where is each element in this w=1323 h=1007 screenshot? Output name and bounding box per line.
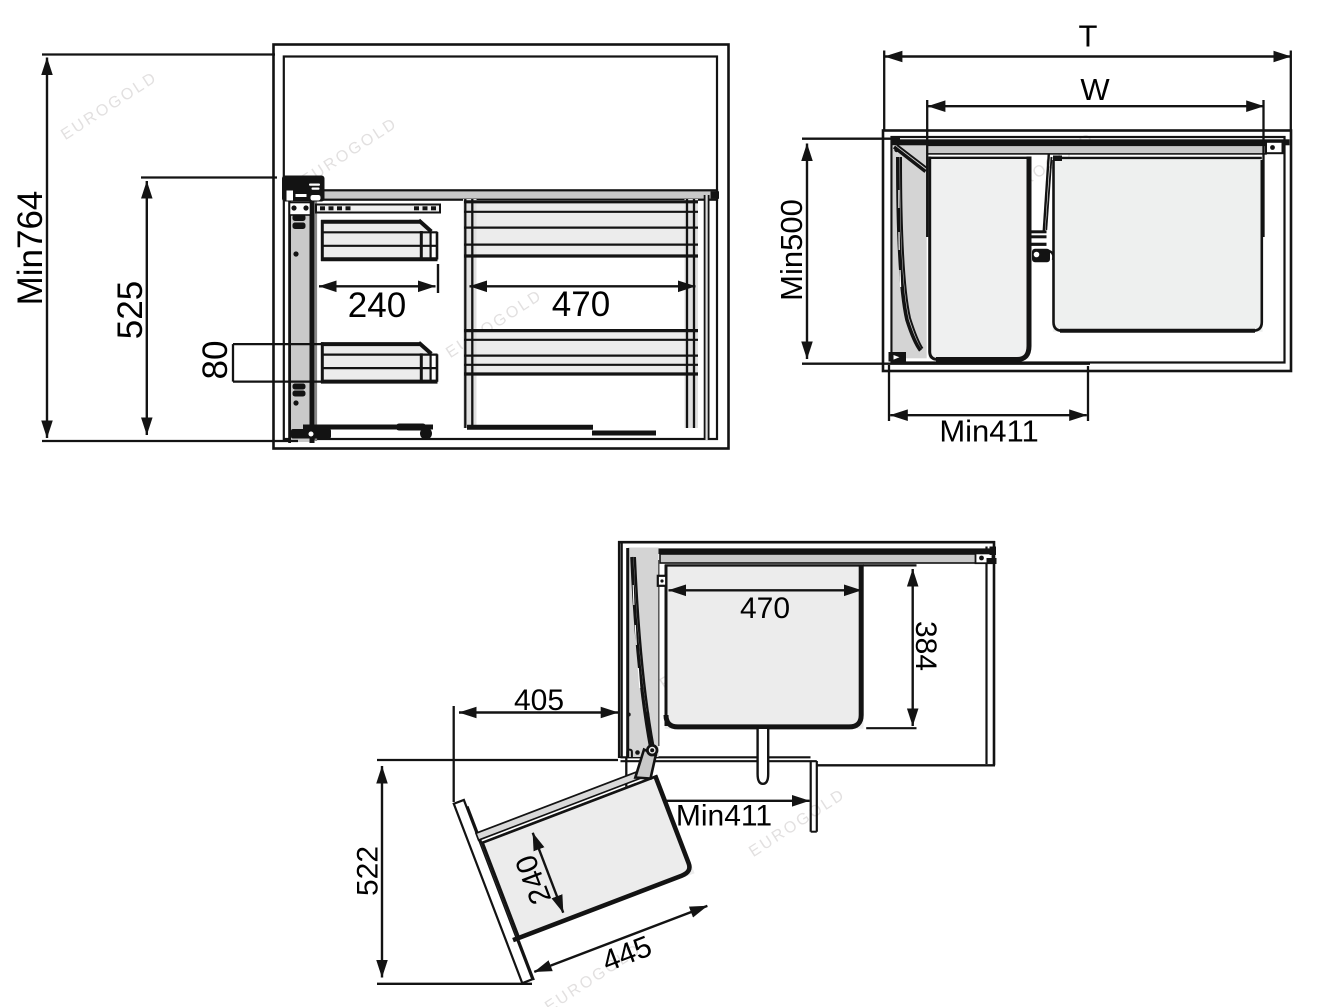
svg-text:Min764: Min764: [11, 191, 50, 306]
svg-text:522: 522: [352, 846, 385, 896]
svg-text:470: 470: [740, 592, 790, 625]
svg-text:T: T: [1079, 19, 1098, 54]
svg-text:Min411: Min411: [676, 800, 772, 833]
svg-text:405: 405: [514, 684, 564, 717]
svg-text:470: 470: [552, 285, 610, 324]
svg-text:240: 240: [348, 286, 406, 325]
svg-text:Min500: Min500: [774, 199, 809, 301]
svg-text:Min411: Min411: [939, 414, 1038, 449]
svg-text:W: W: [1080, 72, 1110, 107]
svg-text:525: 525: [111, 281, 150, 339]
svg-text:384: 384: [909, 621, 942, 671]
svg-text:80: 80: [196, 341, 235, 380]
